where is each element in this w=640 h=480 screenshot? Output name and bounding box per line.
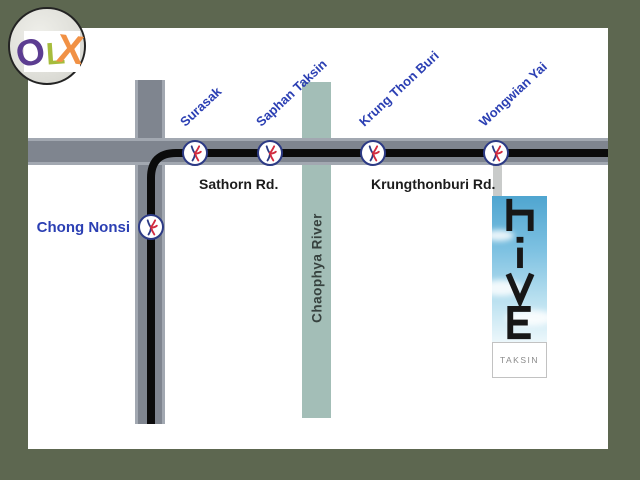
road-vertical	[135, 80, 165, 424]
river-label: Chaophya River	[310, 213, 325, 323]
hive-building-banner: hive	[492, 196, 547, 342]
road-sathorn-krungthonburi	[28, 138, 608, 165]
taksin-label: TAKSIN	[500, 355, 539, 365]
bts-logo-icon	[260, 143, 280, 163]
bts-logo-icon	[141, 217, 161, 237]
station-marker-krung-thon-buri	[360, 140, 386, 166]
bts-logo-icon	[486, 143, 506, 163]
station-marker-saphan-taksin	[257, 140, 283, 166]
olx-letter-x: X	[55, 29, 86, 72]
olx-logo: O L X	[8, 7, 86, 85]
hive-wordmark	[502, 196, 538, 342]
station-marker-chong-nonsi	[138, 214, 164, 240]
station-marker-surasak	[182, 140, 208, 166]
bts-logo-icon	[363, 143, 383, 163]
road-label-sathorn: Sathorn Rd.	[199, 176, 278, 192]
taksin-label-box: TAKSIN	[492, 342, 547, 378]
road-label-krungthonburi: Krungthonburi Rd.	[371, 176, 495, 192]
bts-logo-icon	[185, 143, 205, 163]
map-image: Surasak Saphan Taksin Krung Thon Buri Wo…	[0, 0, 640, 480]
station-marker-wongwian-yai	[483, 140, 509, 166]
station-label-chong-nonsi: Chong Nonsi	[36, 219, 130, 236]
